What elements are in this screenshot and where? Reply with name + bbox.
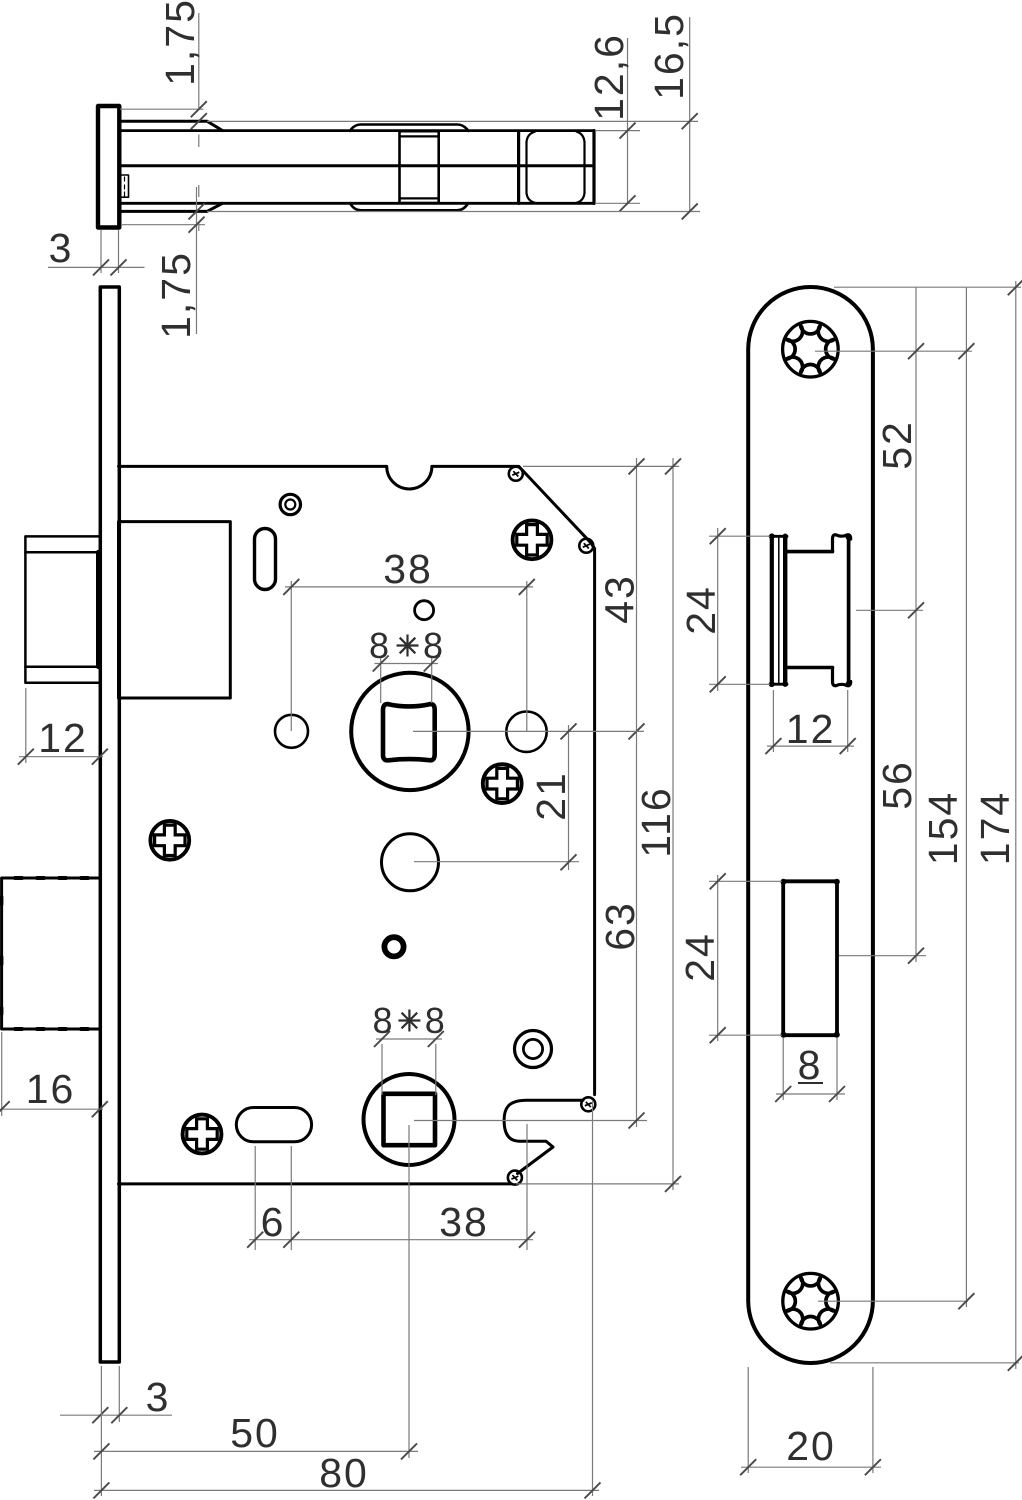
svg-text:154: 154 bbox=[920, 791, 966, 865]
svg-text:8: 8 bbox=[425, 1000, 447, 1041]
svg-text:8: 8 bbox=[798, 1042, 823, 1088]
svg-text:8: 8 bbox=[372, 1000, 394, 1041]
svg-text:38: 38 bbox=[439, 1199, 489, 1245]
svg-text:174: 174 bbox=[972, 791, 1018, 865]
svg-text:21: 21 bbox=[528, 771, 574, 821]
svg-text:16,5: 16,5 bbox=[646, 12, 692, 100]
svg-text:63: 63 bbox=[597, 901, 643, 951]
svg-text:43: 43 bbox=[597, 574, 643, 624]
svg-text:1,75: 1,75 bbox=[157, 0, 203, 86]
svg-text:20: 20 bbox=[786, 1423, 836, 1469]
svg-text:8: 8 bbox=[369, 625, 391, 666]
svg-text:12: 12 bbox=[786, 706, 836, 752]
svg-text:52: 52 bbox=[874, 420, 920, 470]
svg-text:24: 24 bbox=[678, 585, 724, 635]
svg-text:16: 16 bbox=[26, 1066, 76, 1112]
svg-text:24: 24 bbox=[677, 932, 723, 982]
svg-text:38: 38 bbox=[383, 546, 433, 592]
svg-text:12: 12 bbox=[38, 715, 88, 761]
svg-text:80: 80 bbox=[319, 1450, 369, 1496]
svg-text:3: 3 bbox=[49, 225, 74, 271]
svg-text:3: 3 bbox=[146, 1374, 171, 1420]
svg-text:50: 50 bbox=[230, 1410, 280, 1456]
svg-text:12,6: 12,6 bbox=[586, 33, 632, 121]
svg-text:56: 56 bbox=[874, 760, 920, 810]
svg-text:1,75: 1,75 bbox=[153, 251, 199, 339]
svg-text:8: 8 bbox=[423, 625, 445, 666]
svg-text:116: 116 bbox=[633, 786, 679, 857]
svg-text:6: 6 bbox=[261, 1199, 286, 1245]
